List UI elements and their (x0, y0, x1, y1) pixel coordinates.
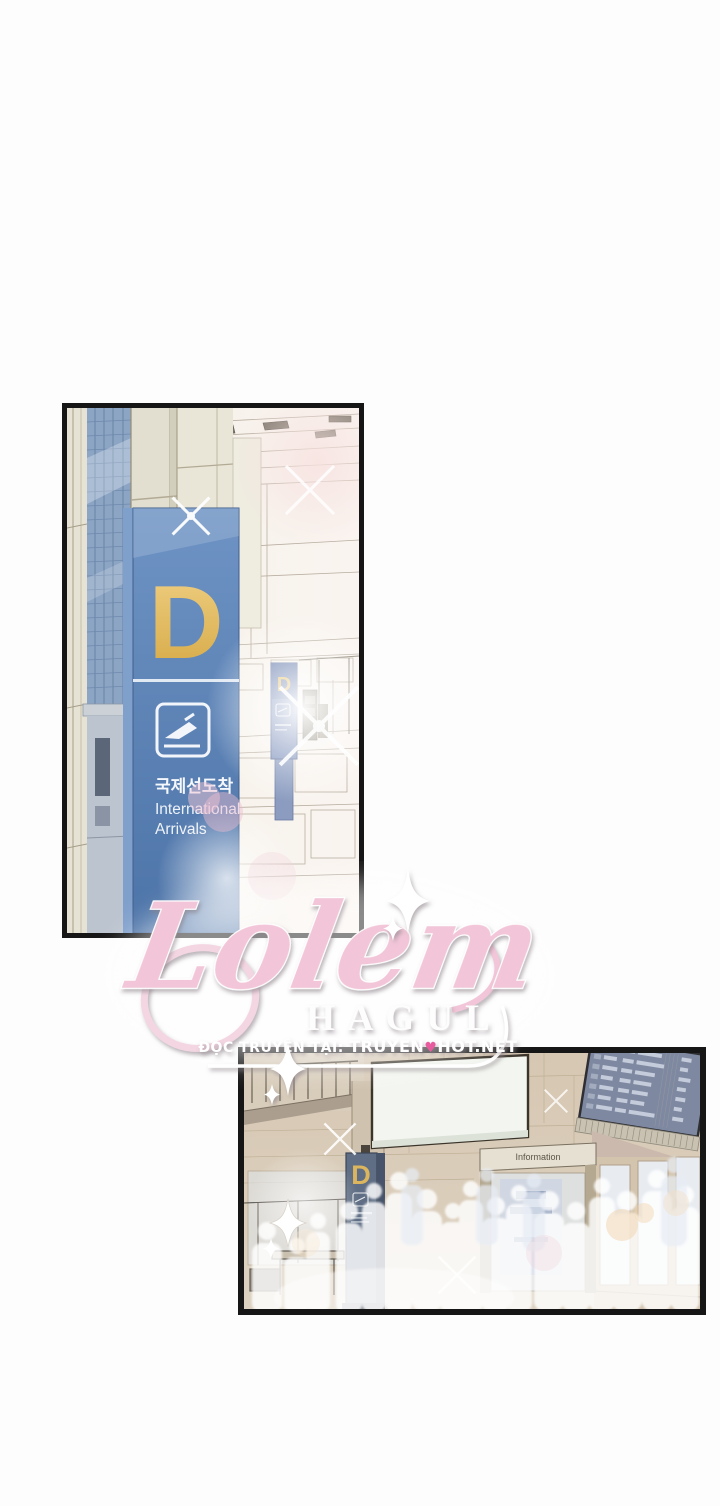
top-panel: D (62, 403, 364, 938)
left-wall-strip (67, 408, 87, 933)
top-panel-scene: D (67, 408, 359, 933)
info-sign-label: Information (515, 1152, 560, 1162)
zone-letter: D (148, 565, 223, 681)
comic-page: D (0, 0, 720, 1506)
bottom-panel: Information (238, 1047, 706, 1315)
billboard (372, 1055, 528, 1148)
logo-subtitle: HAGUL (306, 998, 502, 1039)
logo-flourish (134, 928, 498, 1060)
bottom-panel-scene: Information (244, 1053, 700, 1309)
